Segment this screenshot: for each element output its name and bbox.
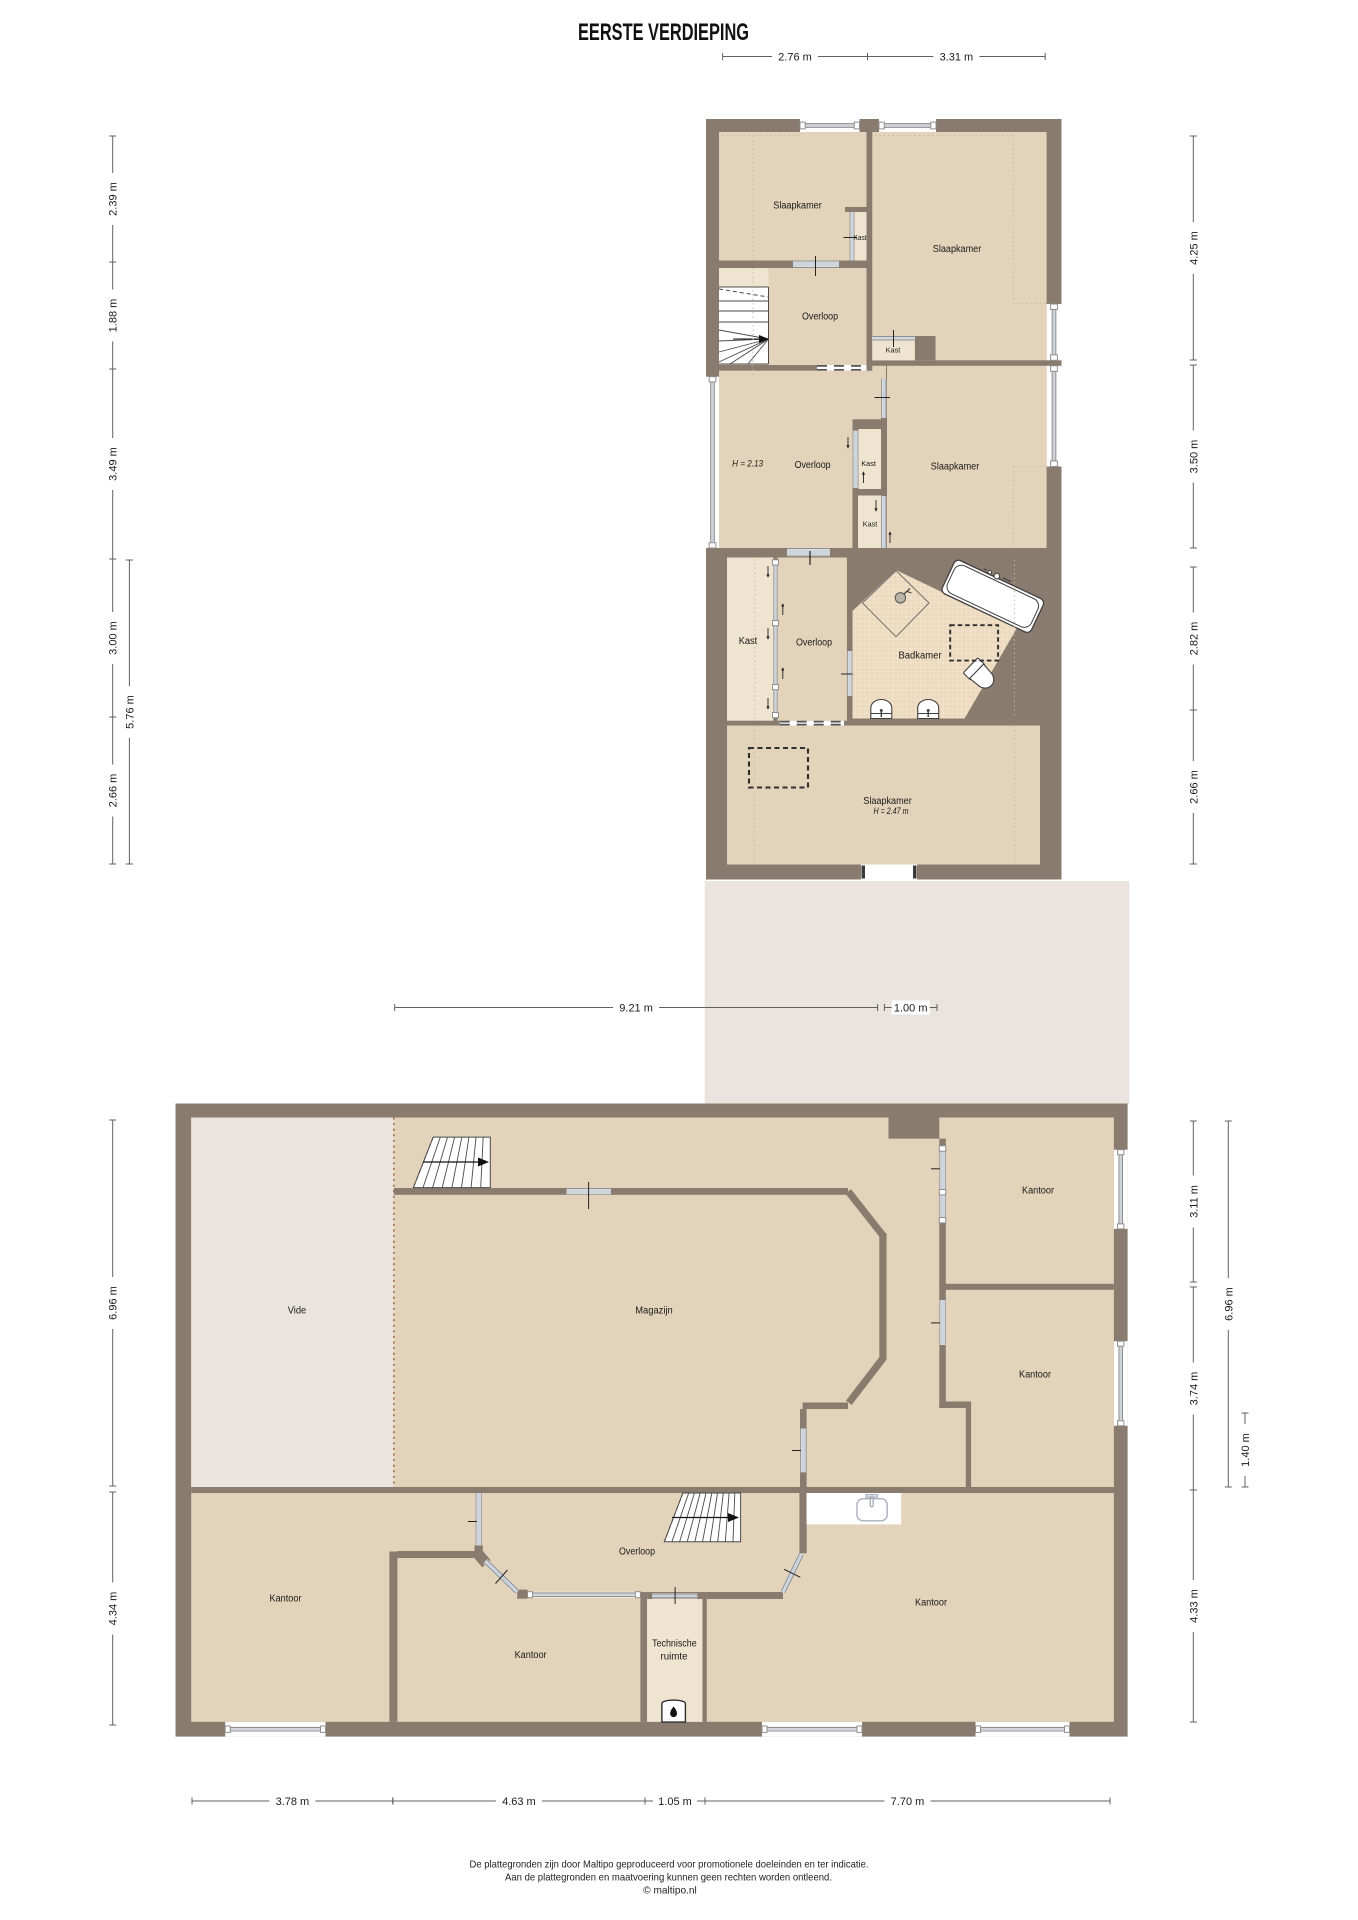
svg-text:3.31 m: 3.31 m — [940, 52, 974, 64]
svg-text:Kast: Kast — [739, 636, 758, 647]
svg-text:Kast: Kast — [886, 346, 901, 355]
svg-text:De plattegronden zijn door Mal: De plattegronden zijn door Maltipo gepro… — [470, 1858, 869, 1870]
svg-text:Kast: Kast — [863, 520, 878, 529]
svg-text:Kast: Kast — [861, 459, 876, 468]
svg-text:Kantoor: Kantoor — [270, 1594, 303, 1605]
svg-text:2.66 m: 2.66 m — [1188, 770, 1200, 804]
svg-text:Overloop: Overloop — [796, 638, 832, 649]
svg-text:6.96 m: 6.96 m — [1223, 1287, 1235, 1321]
svg-text:Slaapkamer: Slaapkamer — [933, 244, 982, 255]
svg-text:1.88 m: 1.88 m — [108, 299, 120, 333]
svg-text:3.74 m: 3.74 m — [1188, 1372, 1200, 1406]
svg-text:7.70 m: 7.70 m — [891, 1796, 925, 1808]
svg-text:3.00 m: 3.00 m — [108, 621, 120, 655]
svg-text:Slaapkamer: Slaapkamer — [931, 461, 980, 472]
svg-text:Kast: Kast — [854, 235, 867, 242]
svg-text:H = 2.47 m: H = 2.47 m — [874, 806, 909, 816]
svg-text:2.39 m: 2.39 m — [108, 182, 120, 216]
svg-text:H = 2.13: H = 2.13 — [732, 459, 763, 469]
svg-text:ruimte: ruimte — [661, 1651, 688, 1662]
svg-text:6.96 m: 6.96 m — [108, 1286, 120, 1320]
svg-text:Slaapkamer: Slaapkamer — [773, 201, 822, 212]
svg-text:Technische: Technische — [652, 1638, 697, 1649]
svg-text:Kantoor: Kantoor — [1019, 1370, 1052, 1381]
svg-text:5.76 m: 5.76 m — [124, 695, 136, 729]
svg-text:4.34 m: 4.34 m — [108, 1592, 120, 1626]
svg-text:EERSTE VERDIEPING: EERSTE VERDIEPING — [578, 19, 749, 46]
svg-text:Overloop: Overloop — [619, 1547, 655, 1558]
svg-text:3.11 m: 3.11 m — [1188, 1185, 1200, 1218]
svg-text:Vide: Vide — [288, 1306, 307, 1317]
svg-text:2.66 m: 2.66 m — [108, 774, 120, 808]
svg-text:1.05 m: 1.05 m — [658, 1796, 692, 1808]
svg-text:Overloop: Overloop — [795, 460, 831, 471]
svg-text:2.82 m: 2.82 m — [1188, 622, 1200, 656]
svg-text:Magazijn: Magazijn — [635, 1306, 673, 1317]
svg-text:3.78 m: 3.78 m — [276, 1796, 310, 1808]
svg-text:Badkamer: Badkamer — [899, 650, 943, 661]
svg-text:4.25 m: 4.25 m — [1188, 231, 1200, 265]
svg-text:Kantoor: Kantoor — [1022, 1186, 1055, 1197]
svg-text:3.49 m: 3.49 m — [108, 447, 120, 481]
svg-text:2.76 m: 2.76 m — [778, 52, 812, 64]
svg-text:3.50 m: 3.50 m — [1188, 440, 1200, 474]
svg-text:9.21 m: 9.21 m — [619, 1003, 653, 1015]
svg-text:1.40 m: 1.40 m — [1240, 1433, 1252, 1467]
svg-text:Aan de plattegronden en maatvo: Aan de plattegronden en maatvoering kunn… — [505, 1872, 832, 1884]
svg-text:Kantoor: Kantoor — [515, 1650, 548, 1661]
svg-text:Overloop: Overloop — [802, 312, 838, 323]
svg-text:1.00 m: 1.00 m — [894, 1003, 928, 1015]
svg-text:© maltipo.nl: © maltipo.nl — [643, 1885, 697, 1897]
svg-text:Kantoor: Kantoor — [915, 1597, 948, 1608]
svg-text:4.63 m: 4.63 m — [502, 1796, 536, 1808]
svg-text:4.33 m: 4.33 m — [1188, 1589, 1200, 1623]
